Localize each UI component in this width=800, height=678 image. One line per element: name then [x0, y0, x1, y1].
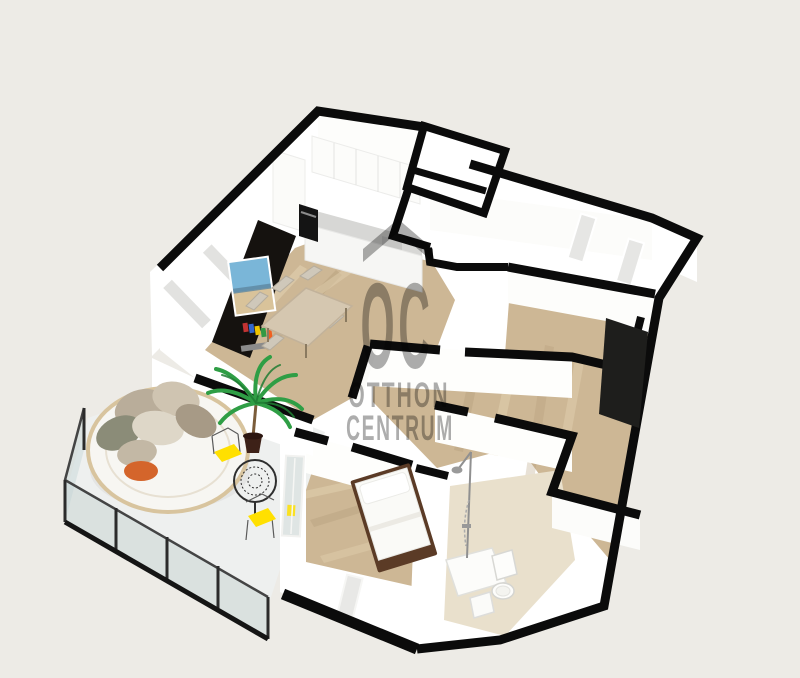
- balcony-door-bedroom: [282, 456, 304, 537]
- yellow-reflection: [287, 505, 296, 516]
- orange-side-table: [124, 461, 158, 481]
- watermark-line2: CENTRUM: [346, 408, 454, 448]
- shower-mixer: [462, 524, 471, 528]
- floor-plan-scene: OC OTTHON CENTRUM: [0, 0, 800, 678]
- toilet: [492, 550, 517, 599]
- oven: [299, 204, 318, 242]
- watermark-monogram: OC: [360, 259, 433, 395]
- floor-plan-image: OC OTTHON CENTRUM: [0, 0, 800, 678]
- shower-head: [452, 467, 463, 474]
